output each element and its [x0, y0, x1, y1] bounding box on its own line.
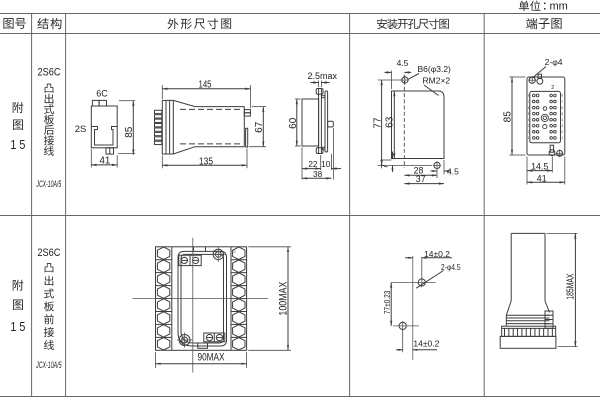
svg-text:2S: 2S: [75, 124, 87, 135]
svg-text:4: 4: [561, 118, 563, 122]
svg-text:2-φ4: 2-φ4: [545, 57, 563, 67]
svg-text:100MAX: 100MAX: [277, 281, 289, 316]
svg-text:8: 8: [528, 94, 530, 98]
svg-text:77: 77: [373, 117, 384, 129]
svg-text:1 5: 1 5: [10, 319, 25, 334]
svg-text:41: 41: [100, 155, 111, 166]
svg-text:2S6C: 2S6C: [38, 67, 61, 79]
svg-text:JCX-10A/5: JCX-10A/5: [36, 179, 62, 190]
svg-text:2S6C: 2S6C: [37, 247, 60, 259]
svg-text:63: 63: [385, 116, 396, 128]
svg-text:mm: mm: [550, 0, 568, 12]
svg-text:7: 7: [561, 100, 563, 104]
svg-text:185MAX: 185MAX: [566, 273, 577, 299]
svg-text:JCX-10A/5: JCX-10A/5: [36, 360, 62, 371]
svg-text:2-φ4.5: 2-φ4.5: [441, 262, 461, 272]
svg-text:1: 1: [528, 136, 530, 140]
svg-text:7: 7: [379, 164, 389, 169]
svg-text:1 5: 1 5: [10, 137, 25, 152]
svg-text:3: 3: [528, 124, 530, 128]
svg-text:145: 145: [199, 79, 212, 90]
svg-text:135: 135: [199, 156, 213, 167]
svg-text:85: 85: [503, 111, 514, 123]
svg-text:6: 6: [561, 106, 563, 110]
svg-text:60: 60: [288, 117, 299, 129]
svg-text:RM2×2: RM2×2: [423, 76, 451, 86]
svg-text:4.5: 4.5: [397, 58, 409, 68]
svg-text:2: 2: [561, 130, 563, 134]
svg-text:3: 3: [561, 124, 563, 128]
svg-text:38: 38: [313, 170, 323, 179]
svg-text:5: 5: [561, 112, 563, 116]
svg-text:2.5max: 2.5max: [308, 71, 338, 81]
svg-text:1: 1: [561, 136, 563, 140]
svg-text:22: 22: [308, 160, 318, 169]
svg-text:77±0.23: 77±0.23: [383, 290, 392, 314]
svg-text:B6(φ3.2): B6(φ3.2): [418, 64, 452, 74]
svg-text:6C: 6C: [96, 89, 108, 99]
svg-text:14.5: 14.5: [531, 161, 548, 171]
svg-text:6: 6: [528, 106, 530, 110]
svg-text:7: 7: [528, 100, 530, 104]
svg-text:37: 37: [416, 174, 426, 184]
svg-text:4: 4: [528, 118, 530, 122]
svg-text:14±0.2: 14±0.2: [413, 338, 439, 348]
svg-text:90MAX: 90MAX: [198, 351, 225, 363]
svg-text:8: 8: [561, 94, 563, 98]
svg-text:2: 2: [528, 130, 530, 134]
svg-text:4.5: 4.5: [447, 166, 459, 176]
svg-text:5: 5: [528, 112, 530, 116]
svg-text:2: 2: [551, 85, 554, 91]
svg-text:85: 85: [124, 126, 135, 138]
svg-text:41: 41: [537, 173, 547, 183]
svg-text:67: 67: [254, 121, 265, 133]
svg-text:10: 10: [321, 160, 331, 169]
